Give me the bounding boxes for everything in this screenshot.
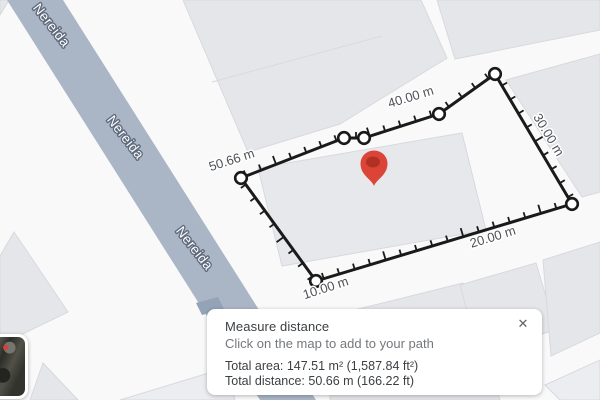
panel-title: Measure distance (225, 318, 512, 335)
measure-vertex-handle[interactable] (489, 68, 501, 80)
measure-vertex-handle[interactable] (358, 132, 370, 144)
panel-subtitle: Click on the map to add to your path (225, 335, 512, 352)
measure-vertex-handle[interactable] (338, 132, 350, 144)
satellite-thumb-marker-dot (3, 345, 8, 350)
close-icon[interactable]: ✕ (513, 314, 533, 334)
measure-vertex-handle[interactable] (235, 172, 247, 184)
panel-totals: Total area: 147.51 m² (1,587.84 ft²) Tot… (225, 359, 512, 389)
google-maps-measure-view: Nereida Nereida Nereida 50.66 m 40.00 m … (0, 0, 600, 400)
satellite-layer-toggle[interactable] (0, 334, 28, 399)
total-area-text: Total area: 147.51 m² (1,587.84 ft²) (225, 359, 512, 374)
measure-distance-panel: ✕ Measure distance Click on the map to a… (207, 309, 542, 395)
total-distance-text: Total distance: 50.66 m (166.22 ft) (225, 374, 512, 389)
measure-vertex-handle[interactable] (433, 108, 445, 120)
measure-vertex-handle[interactable] (566, 198, 578, 210)
